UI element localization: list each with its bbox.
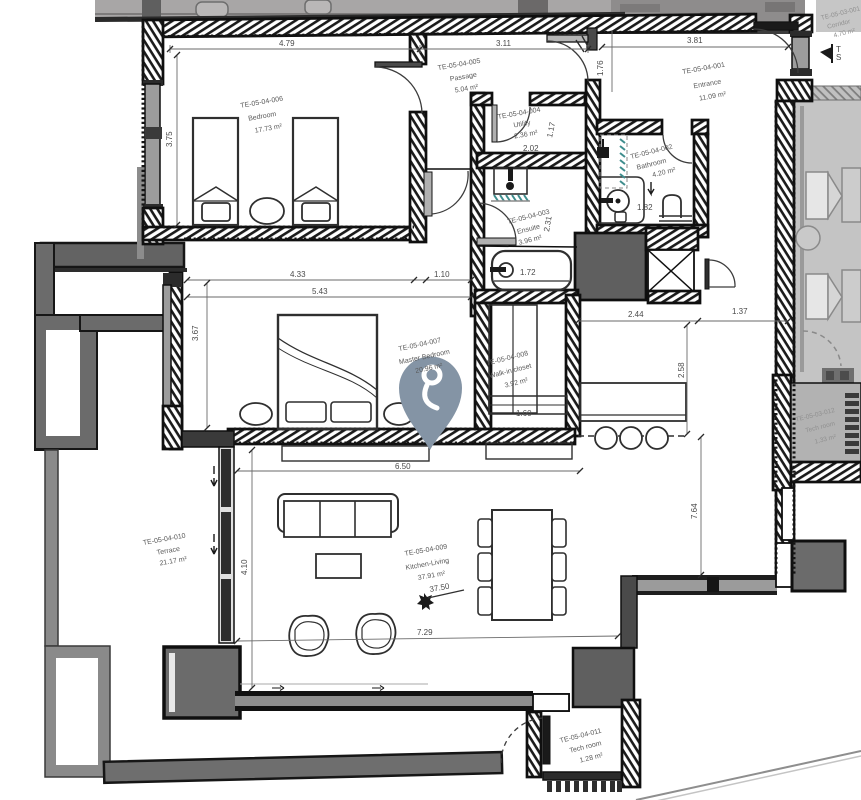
svg-text:1.10: 1.10: [434, 270, 450, 279]
svg-text:1.82: 1.82: [637, 203, 653, 212]
svg-text:3.11: 3.11: [496, 39, 512, 48]
svg-text:4.10: 4.10: [240, 559, 249, 575]
svg-text:6.50: 6.50: [395, 462, 411, 471]
svg-text:2.44: 2.44: [628, 310, 644, 319]
svg-text:2.02: 2.02: [523, 144, 539, 153]
svg-text:3.75: 3.75: [165, 131, 174, 147]
svg-text:3.81: 3.81: [687, 36, 703, 45]
svg-text:4.79: 4.79: [279, 39, 295, 48]
svg-text:1.60: 1.60: [516, 409, 532, 418]
svg-text:2.58: 2.58: [677, 362, 686, 378]
svg-text:7.29: 7.29: [417, 628, 433, 637]
svg-text:S: S: [836, 53, 841, 62]
svg-text:3.67: 3.67: [191, 325, 200, 341]
svg-text:5.43: 5.43: [312, 287, 328, 296]
svg-text:1.76: 1.76: [596, 60, 605, 76]
svg-text:7.64: 7.64: [690, 503, 699, 519]
svg-text:1.37: 1.37: [732, 307, 748, 316]
svg-text:4.33: 4.33: [290, 270, 306, 279]
svg-text:1.72: 1.72: [520, 268, 536, 277]
